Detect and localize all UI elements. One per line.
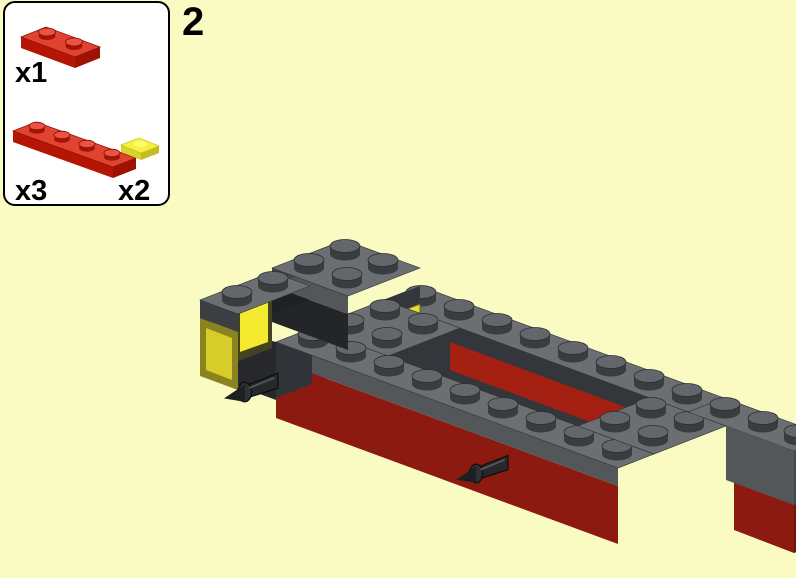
chassis-model	[200, 240, 796, 554]
instruction-page: 2	[0, 0, 796, 578]
model-canvas	[0, 0, 796, 578]
